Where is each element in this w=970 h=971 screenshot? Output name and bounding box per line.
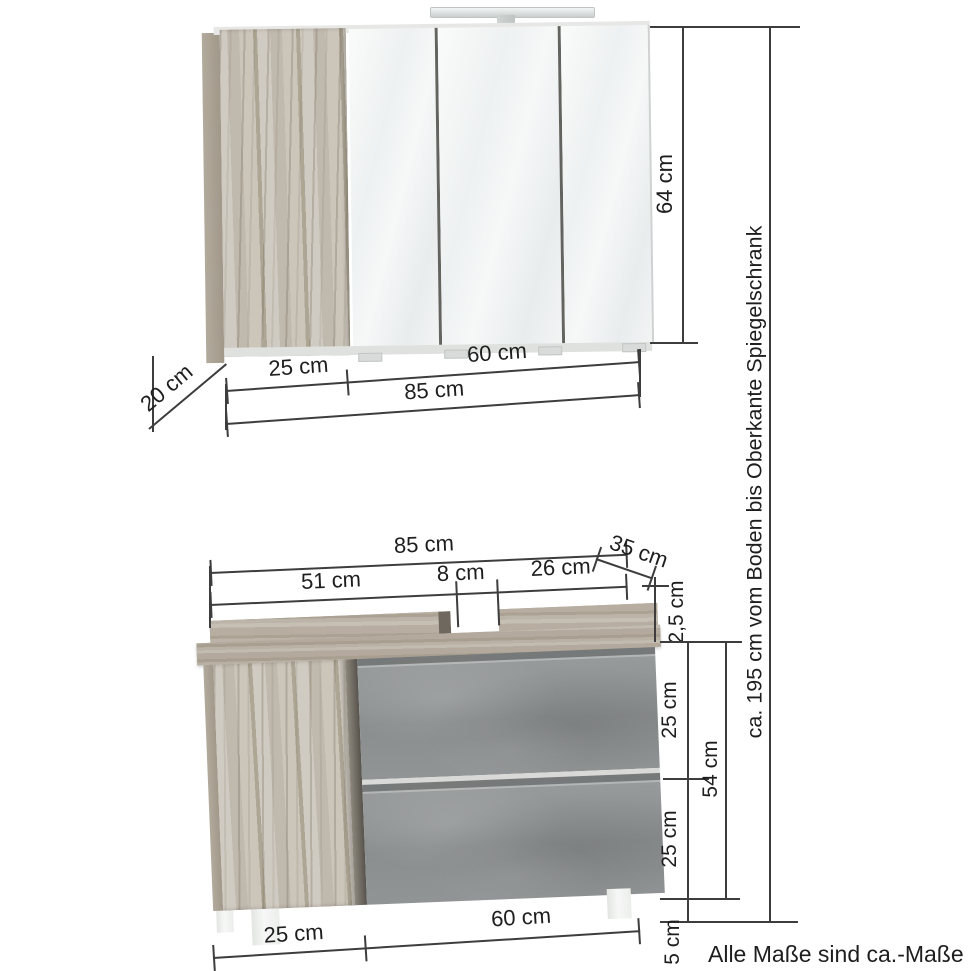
dim-label-lower-drawer: 25 cm	[658, 810, 682, 867]
dim-line-cabinet-depth: 20 cm	[148, 363, 227, 429]
dim-label-top-thickness: 2,5 cm	[665, 580, 689, 643]
dim-line-feet-height	[687, 898, 689, 923]
dim-line-cabinet-total-width: 85 cm	[226, 394, 640, 425]
dim-label-body-height: 54 cm	[699, 740, 723, 797]
dim-line-lower-drawer	[687, 778, 689, 900]
mirror-door-2	[438, 26, 562, 345]
dim-line-overall-height	[769, 26, 771, 922]
vanity-drawer-upper	[357, 647, 660, 780]
dim-label-cabinet-total-width: 85 cm	[403, 375, 465, 405]
dim-extension-left	[225, 384, 227, 430]
dim-label-cabinet-mirror-width: 60 cm	[466, 338, 528, 368]
dim-label-vanity-right-section: 26 cm	[530, 553, 591, 582]
dim-label-cabinet-height: 64 cm	[652, 154, 678, 214]
dim-label-cabinet-door-width: 25 cm	[268, 352, 330, 382]
dim-extension-top	[650, 26, 800, 28]
door-damper	[444, 349, 468, 358]
vanity-foot-right	[607, 888, 632, 919]
dim-line-upper-drawer	[687, 641, 689, 779]
dim-label-vanity-depth: 35 cm	[606, 529, 671, 573]
vanity-cutout-side	[438, 611, 451, 633]
door-damper	[358, 353, 382, 362]
door-damper	[622, 343, 646, 352]
dim-label-vanity-total-width: 85 cm	[393, 530, 454, 559]
dim-line-cabinet-height	[682, 26, 684, 343]
vanity-drawer-lower	[362, 773, 665, 905]
dim-label-base-door-width: 25 cm	[263, 919, 324, 949]
dim-label-upper-drawer: 25 cm	[658, 681, 682, 738]
vanity-unit	[195, 597, 672, 959]
dim-tick	[650, 342, 698, 344]
measure-disclaimer: Alle Maße sind ca.-Maße	[708, 941, 964, 968]
door-damper	[538, 346, 562, 355]
cabinet-wood-door	[220, 28, 351, 357]
mirror-cabinet	[202, 21, 655, 367]
dim-tick	[660, 641, 742, 643]
vanity-door	[213, 659, 355, 910]
mirror-door-3	[561, 25, 654, 343]
dim-label-overall-height: ca. 195 cm vom Boden bis Oberkante Spieg…	[743, 226, 768, 739]
dim-label-base-drawer-width: 60 cm	[490, 903, 551, 933]
dim-label-vanity-left-section: 51 cm	[301, 566, 362, 595]
dim-label-feet-height: 5 cm	[661, 919, 685, 965]
dim-extension-right	[639, 349, 641, 397]
dim-line-body-height	[725, 641, 727, 900]
dimension-diagram: 64 cm ca. 195 cm vom Boden bis Oberkante…	[0, 0, 970, 971]
mirror-door-1	[349, 28, 439, 346]
dim-tick	[660, 898, 740, 900]
dim-label-cabinet-depth: 20 cm	[135, 359, 198, 417]
dim-label-vanity-cutout: 8 cm	[436, 559, 485, 587]
